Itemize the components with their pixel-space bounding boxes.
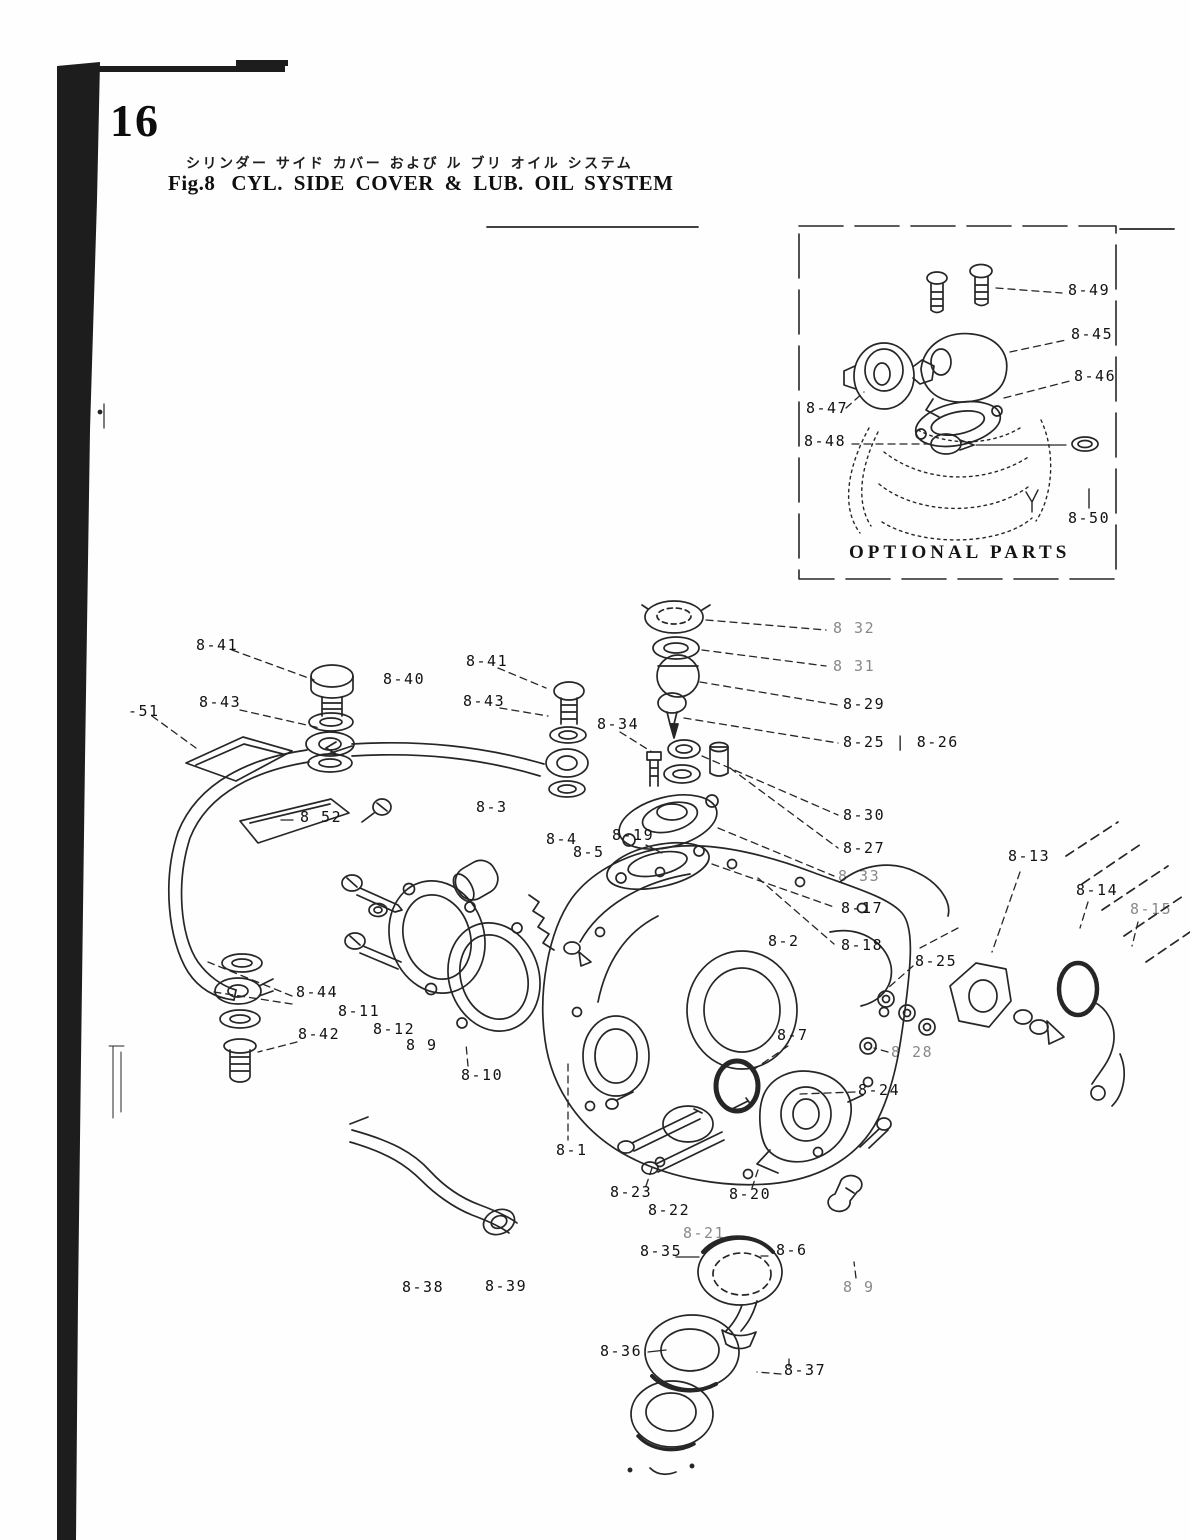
part-label-8-45: 8-45 [1071,327,1113,342]
part-label-8-27: 8-27 [843,841,885,856]
part-label-8-6: 8-6 [776,1243,808,1258]
part-label-8-23: 8-23 [610,1185,652,1200]
part-label-8-30: 8-30 [843,808,885,823]
part-label-8-38: 8-38 [402,1280,444,1295]
part-label-8-5: 8-5 [573,845,605,860]
part-label-8-14: 8-14 [1076,883,1118,898]
part-label-8-10: 8-10 [461,1068,503,1083]
part-label-8-36: 8-36 [600,1344,642,1359]
part-label-8-46: 8-46 [1074,369,1116,384]
part-label-8-22: 8-22 [648,1203,690,1218]
part-label-8-28: 8 28 [891,1045,933,1060]
part-label-8-2: 8-2 [768,934,800,949]
part-label-8-35: 8-35 [640,1244,682,1259]
part-label-8-31: 8 31 [833,659,875,674]
part-label-8-34: 8-34 [597,717,639,732]
part-label-8-40: 8-40 [383,672,425,687]
part-label-8-25: 8-25 [915,954,957,969]
part-label-8-32: 8 32 [833,621,875,636]
part-label-8-1: 8-1 [556,1143,588,1158]
part-label-8-52: 8 52 [300,810,342,825]
part-label-8-42: 8-42 [298,1027,340,1042]
part-label-8-9: 8 9 [843,1280,875,1295]
part-label-8-11: 8-11 [338,1004,380,1019]
part-label-8-49: 8-49 [1068,283,1110,298]
part-label-8-41: 8-41 [466,654,508,669]
part-label-8-20: 8-20 [729,1187,771,1202]
part-label-8-3: 8-3 [476,800,508,815]
part-label-8-43: 8-43 [463,694,505,709]
part-label-8-21: 8-21 [683,1226,725,1241]
part-label-8-47: 8-47 [806,401,848,416]
part-label-8-44: 8-44 [296,985,338,1000]
part-label--51: -51 [128,704,160,719]
part-label-layer: 8-418-408-418-438-43-518-348 528-38 328 … [0,0,1190,1540]
part-label-8-41: 8-41 [196,638,238,653]
part-label-8-39: 8-39 [485,1279,527,1294]
part-label-8-50: 8-50 [1068,511,1110,526]
part-label-8-33: 8 33 [838,869,880,884]
part-label-8-13: 8-13 [1008,849,1050,864]
part-label-8-15: 8-15 [1130,902,1172,917]
part-label-8-19: 8-19 [612,828,654,843]
part-label-8-37: 8-37 [784,1363,826,1378]
part-label-8-7: 8-7 [777,1028,809,1043]
part-label-8-17: 8-17 [841,901,883,916]
part-label-8-12: 8-12 [373,1022,415,1037]
part-label-8-18: 8-18 [841,938,883,953]
part-label-8-48: 8-48 [804,434,846,449]
part-label-8-25-8-26: 8-25 | 8-26 [843,735,959,750]
part-label-8-9: 8 9 [406,1038,438,1053]
part-label-8-29: 8-29 [843,697,885,712]
part-label-8-24: 8-24 [858,1083,900,1098]
part-label-8-43: 8-43 [199,695,241,710]
